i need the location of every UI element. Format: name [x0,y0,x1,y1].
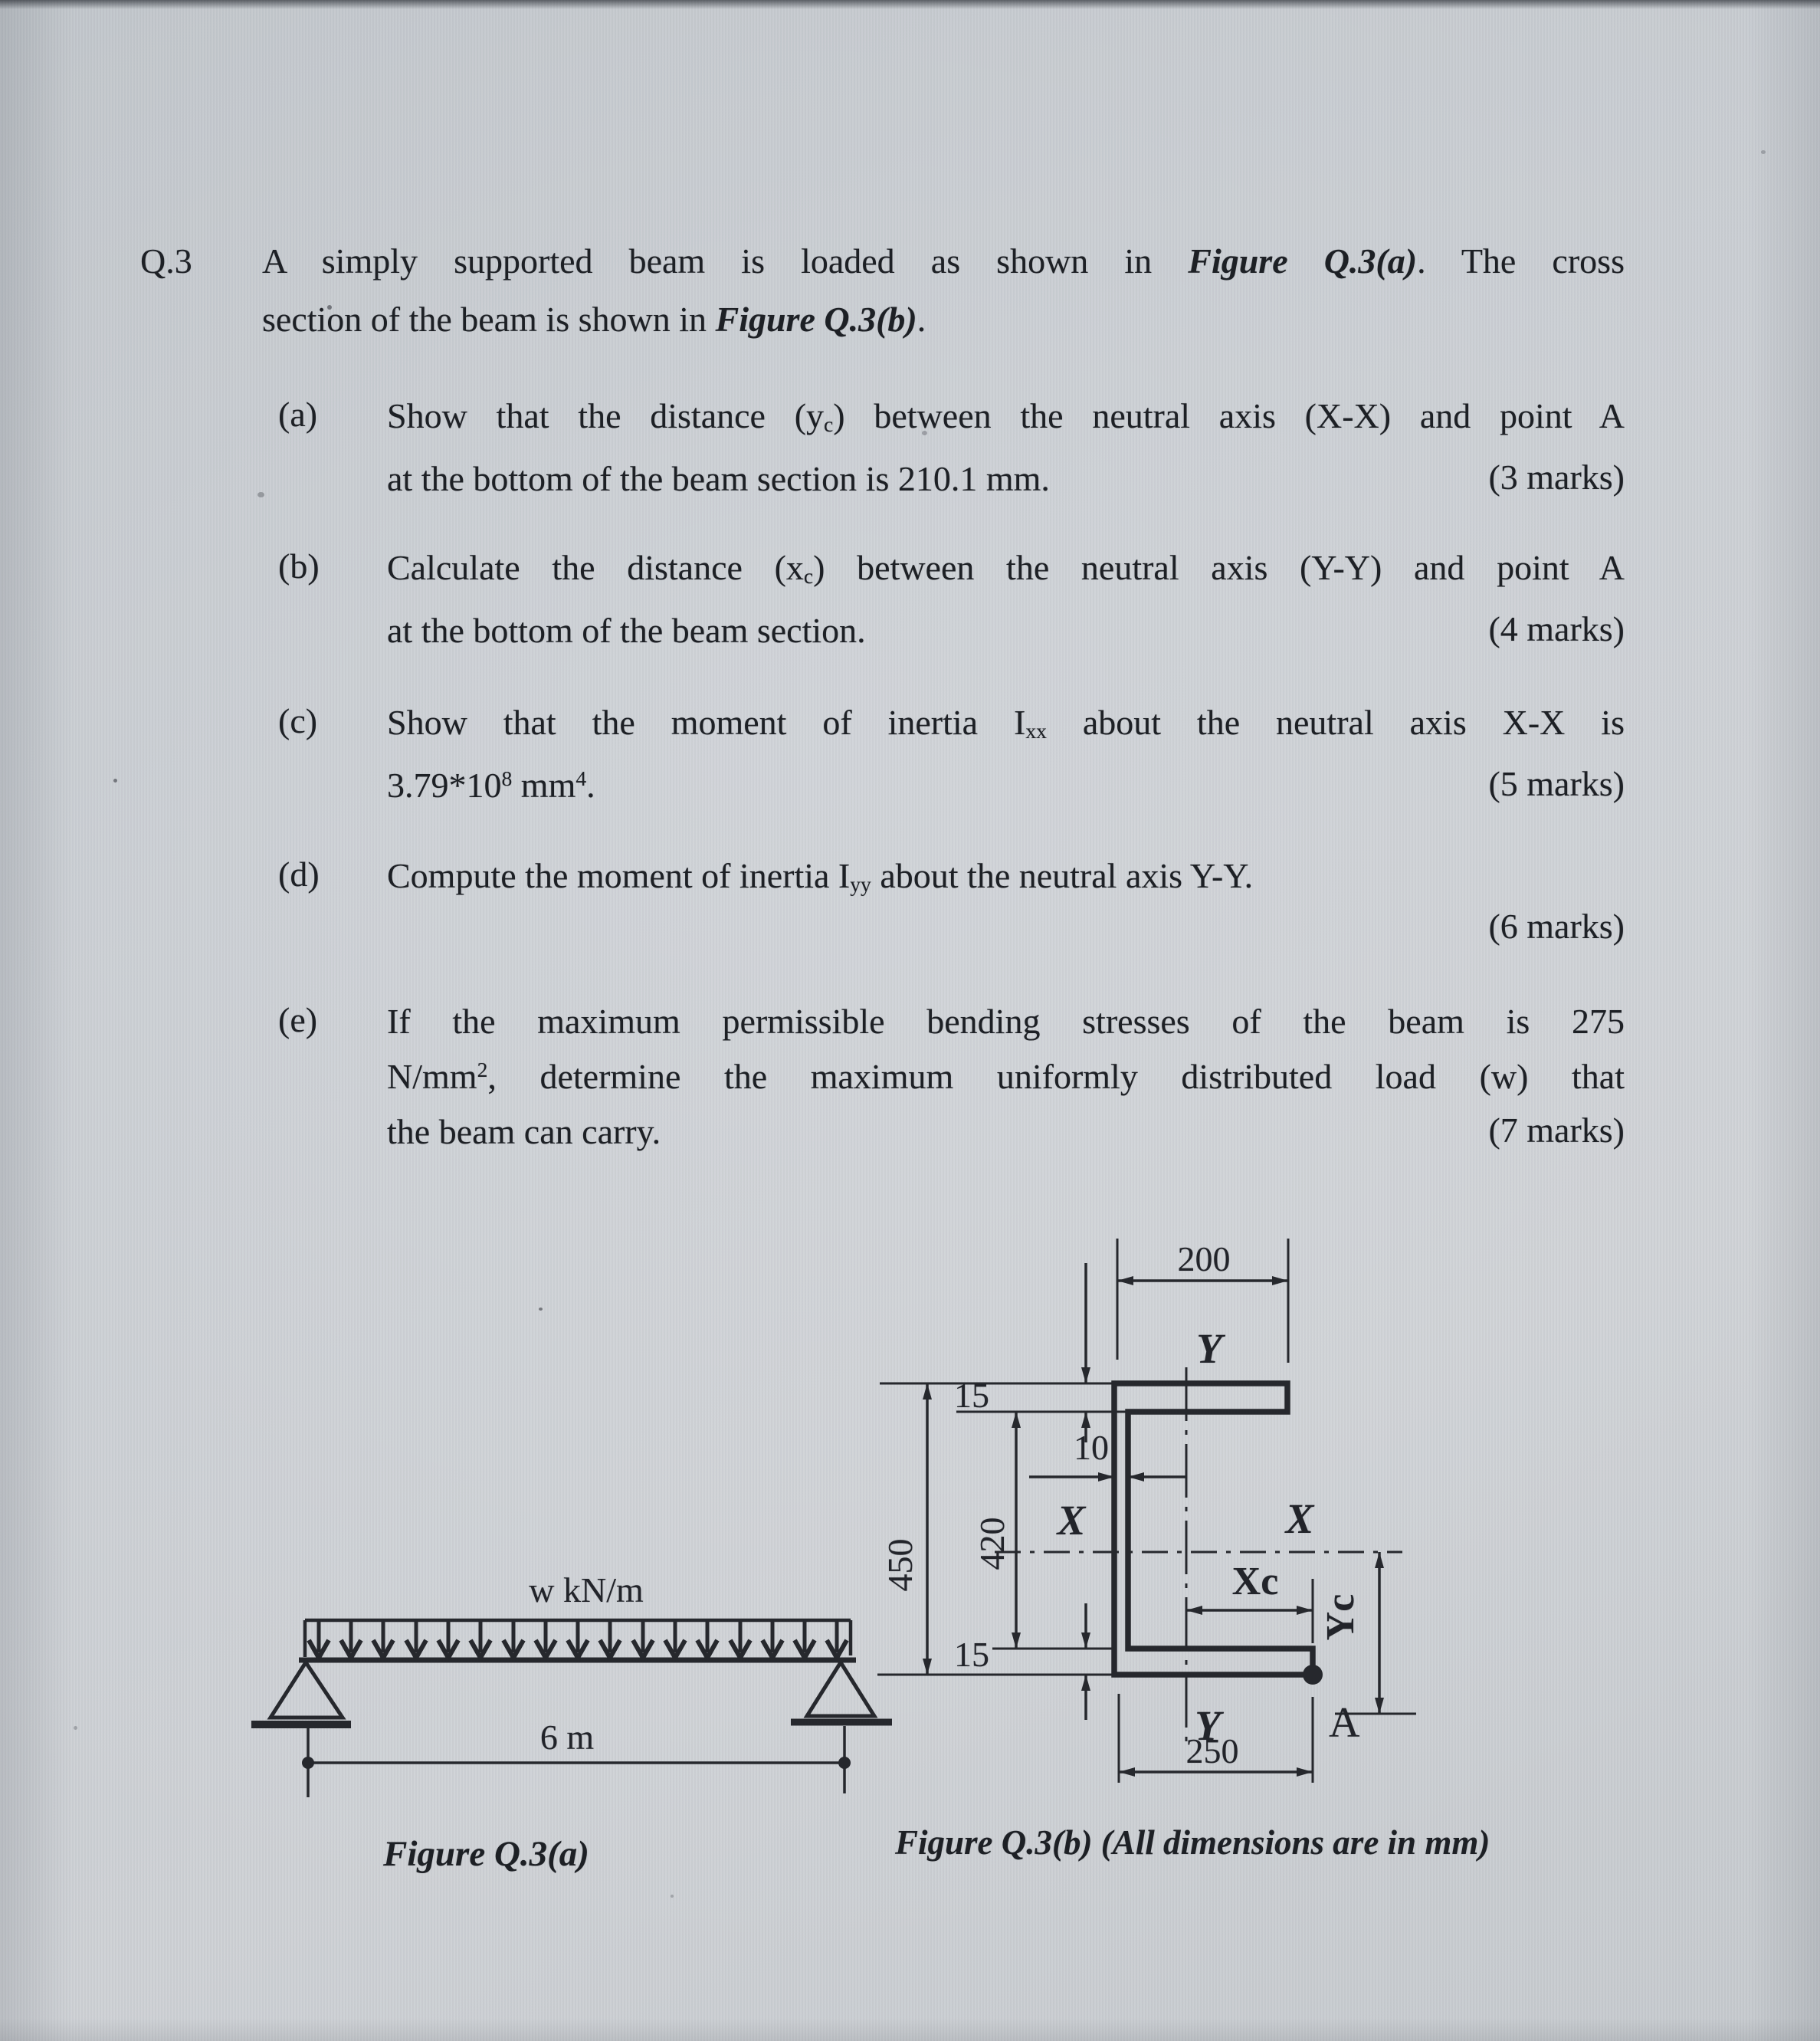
paper-speck [113,779,117,783]
axis-x-right-label: X [1284,1495,1315,1542]
text-seg: , determine the maximum uniformly distri… [487,1057,1625,1096]
section-figure: 200 15 10 450 420 [866,1203,1663,1839]
figure-a-ref: Figure Q.3(a) [1188,241,1417,281]
intro-seg: A simply supported beam is loaded as sho… [262,241,1188,281]
item-d-label: (d) [278,854,320,894]
subscript: c [804,564,813,588]
load-arrow [341,1620,361,1658]
load-arrow [633,1620,653,1658]
dim-yc-label: Yc [1319,1594,1363,1641]
paper-speck [74,1726,77,1730]
load-arrow [762,1620,782,1658]
text-seg: about the neutral axis Y-Y. [871,856,1253,895]
item-a-line-1: Show that the distance (yc) between the … [387,394,1625,439]
figure-a-caption: Figure Q.3(a) [383,1833,589,1875]
text-seg: ) between the neutral axis (X-X) and poi… [833,396,1625,435]
load-arrow [697,1620,717,1658]
paper-speck [327,305,332,310]
dim-420-label: 420 [972,1518,1012,1570]
load-arrow [438,1620,458,1658]
question-intro-line-1: A simply supported beam is loaded as sho… [262,239,1625,284]
dim-15-top-label: 15 [954,1376,989,1415]
dim-15-bottom-label: 15 [954,1635,989,1674]
question-intro-line-2: section of the beam is shown in Figure Q… [262,297,926,343]
load-arrow [309,1620,329,1658]
dim-15-top: 15 [880,1263,1128,1442]
item-e-line-3: the beam can carry. [387,1110,661,1155]
item-d-line-1: Compute the moment of inertia Iyy about … [387,854,1253,899]
item-e-line-2: N/mm2, determine the maximum uniformly d… [387,1055,1625,1100]
item-b-label: (b) [278,546,320,586]
point-a-label: A [1329,1699,1360,1747]
item-b-line-1: Calculate the distance (xc) between the … [387,546,1625,591]
dim-10-web: 10 [1029,1428,1186,1477]
item-e-line-1: If the maximum permissible bending stres… [387,999,1625,1045]
load-arrow [536,1620,556,1658]
item-a-marks: (3 marks) [1226,457,1625,497]
dim-200-label: 200 [1178,1239,1231,1278]
subscript: xx [1025,719,1047,743]
paper-speck [922,431,927,435]
section-outline [1114,1383,1313,1675]
item-a-line-2: at the bottom of the beam section is 210… [387,457,1050,502]
load-arrow [730,1620,750,1658]
axis-y-bottom-label: Y [1195,1702,1224,1749]
dim-xc-label: Xc [1232,1560,1279,1603]
item-e-label: (e) [278,999,317,1040]
text-seg: Show that the distance (y [387,396,824,435]
dim-xc: Xc [1186,1560,1313,1643]
intro-seg: . [917,300,926,339]
udl-load: w kN/m [305,1570,851,1658]
beam-figure: w kN/m 6 m [169,1541,897,1862]
text-seg: ) between the neutral axis (Y-Y) and poi… [813,548,1625,587]
load-arrow [827,1620,847,1658]
text-seg: Compute the moment of inertia I [387,856,850,895]
dim-end-dot [302,1757,314,1769]
text-seg: Show that the moment of inertia I [387,703,1025,742]
load-intensity-label: w kN/m [529,1570,644,1610]
intro-seg: . The cross [1417,241,1625,281]
load-arrow [665,1620,685,1658]
load-arrow [795,1620,815,1658]
item-c-line-2: 3.79*108 mm4. [387,763,595,809]
roller-support-triangle [807,1662,874,1716]
text-seg: about the neutral axis X-X is [1047,703,1625,742]
load-arrow [568,1620,588,1658]
load-arrow [503,1620,523,1658]
item-c-marks: (5 marks) [1226,763,1625,804]
superscript: 8 [502,766,513,790]
span-dimension: 6 m [302,1718,851,1797]
axis-x-left-label: X [1056,1497,1087,1544]
text-seg: . [586,766,595,805]
subscript: yy [850,872,871,896]
text-seg: mm [512,766,576,805]
item-c-line-1: Show that the moment of inertia Ixx abou… [387,701,1625,746]
exam-sheet: Q.3 A simply supported beam is loaded as… [0,0,1820,2041]
paper-speck [257,492,264,497]
dim-end-dot [838,1757,851,1769]
axis-y-top-label: Y [1196,1325,1225,1372]
paper-speck [671,1895,674,1898]
item-b-line-2: at the bottom of the beam section. [387,609,866,654]
dim-10-label: 10 [1074,1428,1109,1467]
question-number: Q.3 [140,239,192,284]
figure-b-ref: Figure Q.3(b) [716,300,917,339]
pin-support-triangle [271,1662,343,1718]
text-seg: N/mm [387,1057,477,1096]
item-e-marks: (7 marks) [1226,1110,1625,1150]
left-support [251,1662,351,1724]
dim-450-label: 450 [880,1539,920,1592]
superscript: 2 [477,1058,488,1081]
superscript: 4 [576,766,586,790]
figure-b-caption: Figure Q.3(b) (All dimensions are in mm) [895,1823,1490,1862]
load-arrow [406,1620,426,1658]
load-arrow [373,1620,393,1658]
text-seg: 3.79*10 [387,766,502,805]
text-seg: Calculate the distance (x [387,548,804,587]
span-length-label: 6 m [540,1718,595,1757]
dim-15-bottom: 15 [954,1603,1086,1720]
dim-yc: Yc [1319,1552,1416,1714]
point-a-dot [1303,1665,1323,1685]
item-d-marks: (6 marks) [1226,906,1625,947]
subscript: c [824,412,833,436]
item-c-label: (c) [278,701,317,741]
item-b-marks: (4 marks) [1226,609,1625,649]
load-arrow [471,1620,490,1658]
load-arrow [600,1620,620,1658]
item-a-label: (a) [278,394,317,435]
paper-speck [539,1308,543,1311]
paper-speck [1761,150,1766,154]
